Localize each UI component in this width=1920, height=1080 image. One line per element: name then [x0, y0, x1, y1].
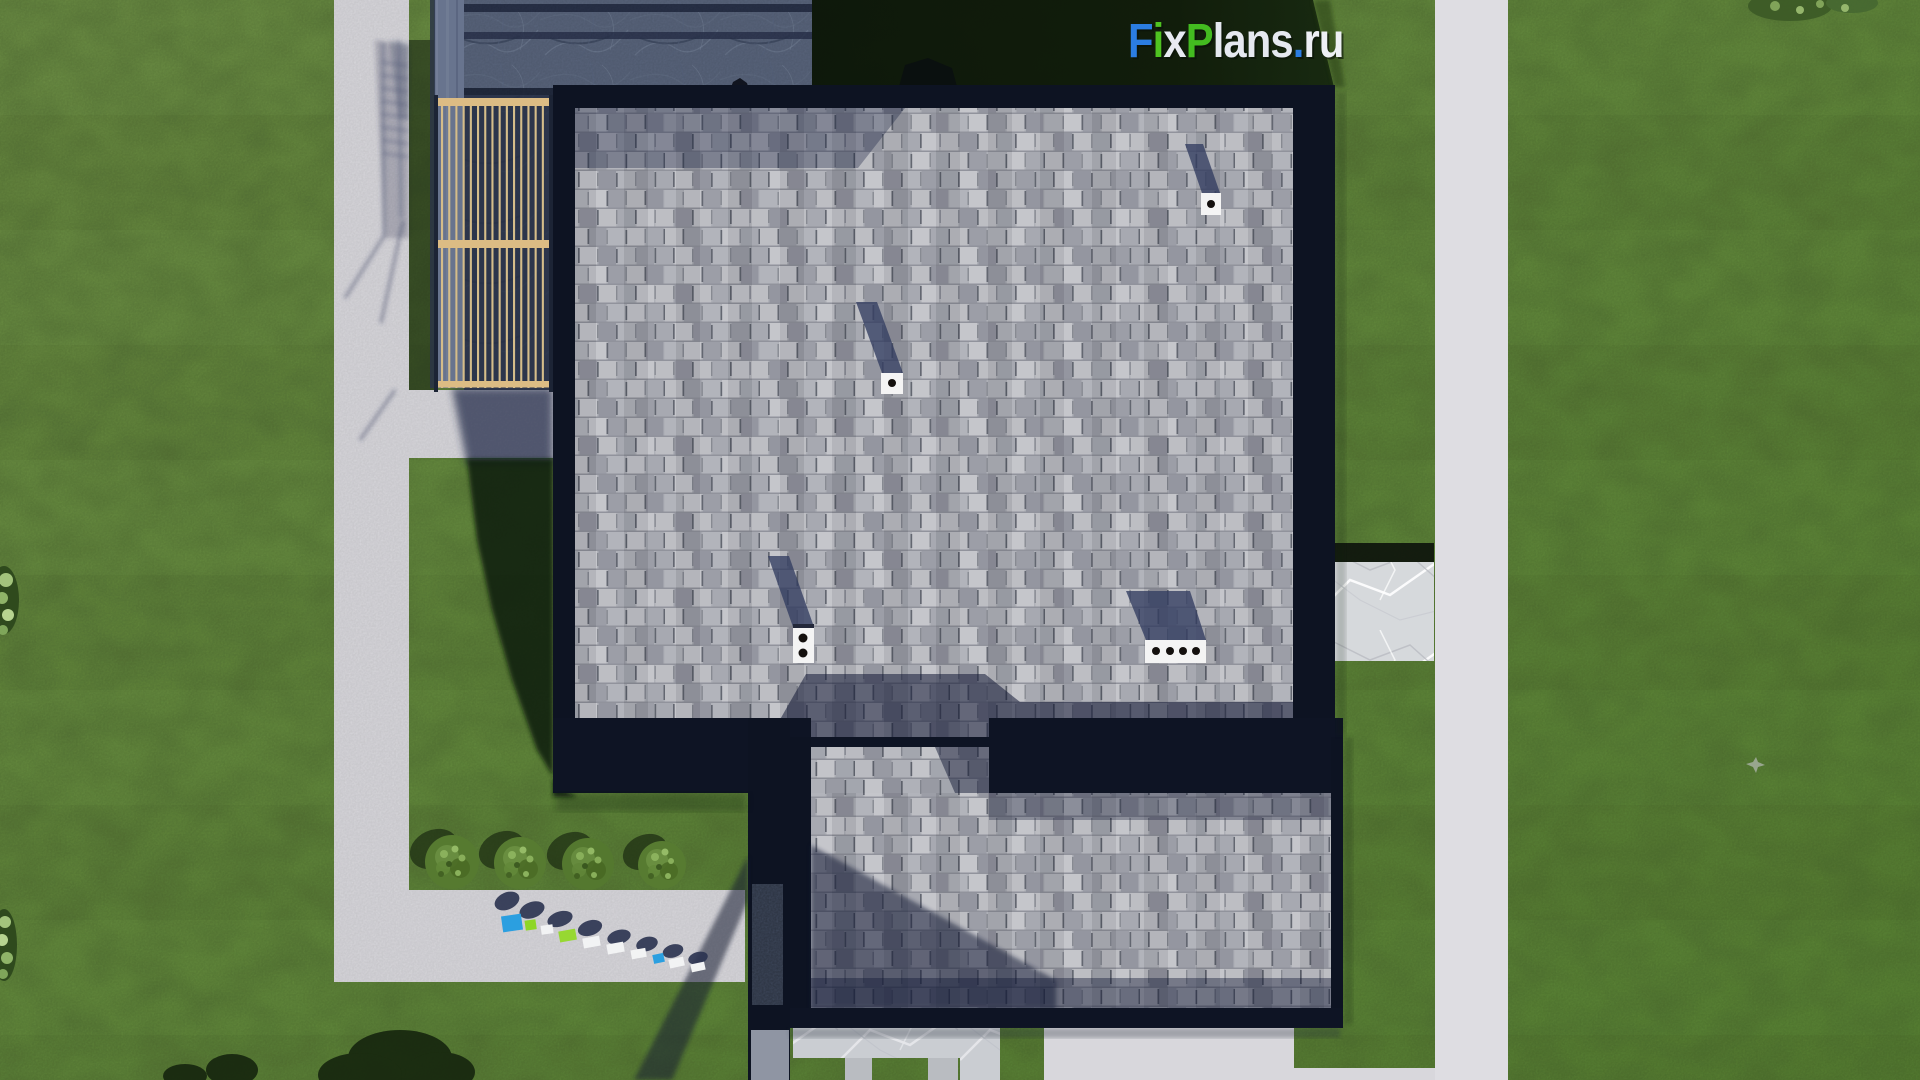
svg-text:FixPlans.ru: FixPlans.ru [1128, 13, 1343, 67]
